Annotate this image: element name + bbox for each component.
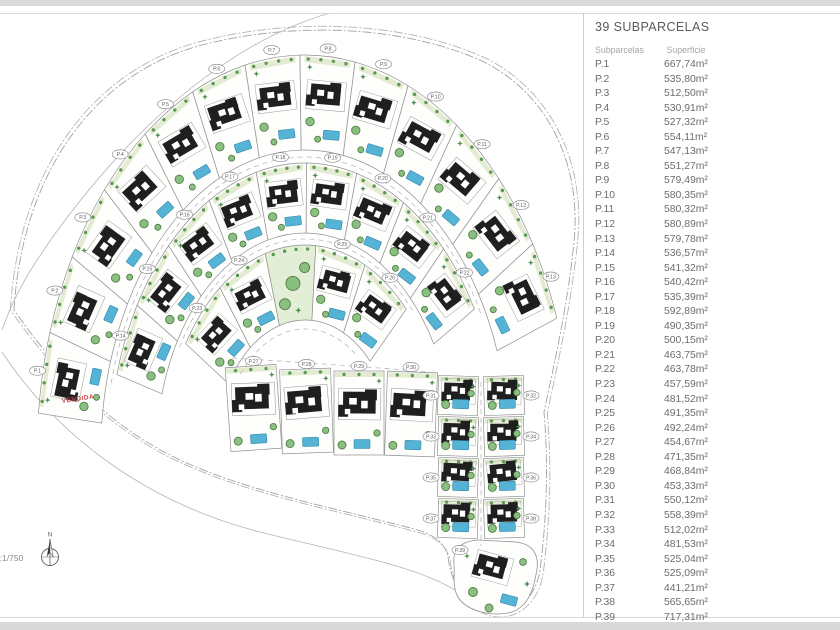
parcel xyxy=(385,371,438,457)
parcel-label: P.35 xyxy=(595,553,664,568)
parcel-label: P.25 xyxy=(595,407,664,422)
svg-text:P.7: P.7 xyxy=(268,48,275,54)
parcel-label: P.20 xyxy=(595,334,664,349)
parcel-area: 579,49m² xyxy=(664,175,708,186)
parcel-area: 535,80m² xyxy=(664,74,708,85)
parcel xyxy=(483,375,524,415)
table-row: P.18592,89m² xyxy=(595,305,839,320)
table-row: P.9579,49m² xyxy=(595,174,839,189)
table-row: P.28471,35m² xyxy=(595,451,839,466)
table-row: P.20500,15m² xyxy=(595,334,839,349)
parcel-label: P.6 xyxy=(595,131,664,146)
svg-text:P.3: P.3 xyxy=(79,215,86,221)
parcel-label: P.22 xyxy=(595,363,664,378)
parcel-label: P.11 xyxy=(595,203,664,218)
table-row: P.31550,12m² xyxy=(595,494,839,509)
parcel-label: P.37 xyxy=(595,582,664,597)
table-row: P.22463,78m² xyxy=(595,363,839,378)
parcel-table: P.1667,74m²P.2535,80m²P.3512,50m²P.4530,… xyxy=(595,58,839,625)
parcel-area: 463,78m² xyxy=(664,364,708,375)
parcel-label: P.31 xyxy=(595,494,664,509)
parcel-label: P.9 xyxy=(595,174,664,189)
parcel-label: P.4 xyxy=(595,102,664,117)
parcel-area: 580,89m² xyxy=(664,219,708,230)
svg-text:P.17: P.17 xyxy=(225,174,235,180)
svg-text:P.8: P.8 xyxy=(325,46,332,52)
parcel-label: P.33 xyxy=(595,524,664,539)
parcel-label: P.16 xyxy=(595,276,664,291)
svg-text:P.13: P.13 xyxy=(546,274,556,280)
svg-text:P.21: P.21 xyxy=(423,215,433,221)
svg-text:P.37: P.37 xyxy=(426,516,436,522)
parcel-area: 492,24m² xyxy=(664,423,708,434)
table-header: Subparcelas Superficie xyxy=(595,45,839,55)
parcel-area: 535,39m² xyxy=(664,292,708,303)
svg-text:P.12: P.12 xyxy=(516,203,526,209)
parcel-area: 554,11m² xyxy=(664,132,707,143)
table-row: P.11580,32m² xyxy=(595,203,839,218)
table-row: P.1667,74m² xyxy=(595,58,839,73)
table-row: P.30453,33m² xyxy=(595,480,839,495)
parcel-label: P.14 xyxy=(595,247,664,262)
parcel-area: 558,39m² xyxy=(664,510,708,521)
parcel xyxy=(483,416,524,456)
svg-text:P.4: P.4 xyxy=(117,152,124,158)
parcel-label: P.27 xyxy=(595,436,664,451)
parcel-area: 468,84m² xyxy=(664,466,708,477)
svg-text:P.16: P.16 xyxy=(180,213,190,219)
parcel-label: P.2 xyxy=(595,73,664,88)
parcel-area: 550,12m² xyxy=(664,495,708,506)
table-row: P.5527,32m² xyxy=(595,116,839,131)
parcel-area: 525,04m² xyxy=(664,554,708,565)
parcel xyxy=(225,364,282,451)
table-row: P.34481,53m² xyxy=(595,538,839,553)
parcel-area: 530,91m² xyxy=(664,103,708,114)
svg-text:P.33: P.33 xyxy=(426,434,436,440)
svg-text:P.28: P.28 xyxy=(301,362,311,368)
svg-text:P.19: P.19 xyxy=(328,156,338,162)
parcel-area: 481,53m² xyxy=(664,539,708,550)
svg-text:P.31: P.31 xyxy=(426,393,436,399)
parcel xyxy=(280,368,334,454)
table-row: P.32558,39m² xyxy=(595,509,839,524)
table-row: P.19490,35m² xyxy=(595,320,839,335)
parcel-area: 512,02m² xyxy=(664,525,708,536)
parcel-label: P.39 xyxy=(595,611,664,626)
svg-text:P.29: P.29 xyxy=(354,364,364,370)
table-row: P.10580,35m² xyxy=(595,189,839,204)
parcel-area: 481,52m² xyxy=(664,394,708,405)
table-row: P.2535,80m² xyxy=(595,73,839,88)
svg-text:P.11: P.11 xyxy=(477,142,487,148)
parcel xyxy=(483,457,524,497)
table-row: P.26492,24m² xyxy=(595,422,839,437)
parcel-label: P.18 xyxy=(595,305,664,320)
panel-title: 39 SUBPARCELAS xyxy=(595,20,839,34)
parcel xyxy=(437,498,478,538)
svg-text:P.1: P.1 xyxy=(34,369,41,375)
parcel-label: P.26 xyxy=(595,422,664,437)
parcel-label: P.29 xyxy=(595,465,664,480)
parcel-label: P.23 xyxy=(595,378,664,393)
svg-text:P.32: P.32 xyxy=(526,393,536,399)
parcel-area: 491,35m² xyxy=(664,408,708,419)
table-row: P.37441,21m² xyxy=(595,582,839,597)
site-plan-drawing: P.1P.2P.3P.4P.5P.6P.7P.8P.9P.10P.11P.12P… xyxy=(0,0,583,630)
svg-text:P.23: P.23 xyxy=(192,306,202,312)
parcel-label: P.32 xyxy=(595,509,664,524)
parcel xyxy=(483,498,524,538)
svg-text:P.5: P.5 xyxy=(162,102,169,108)
parcel-area: 463,75m² xyxy=(664,350,708,361)
parcel-label: P.7 xyxy=(595,145,664,160)
parcel xyxy=(437,457,478,497)
parcel-label: P.1 xyxy=(595,58,664,73)
parcel-area: 512,50m² xyxy=(664,88,708,99)
table-row: P.17535,39m² xyxy=(595,291,839,306)
parcel-area: 490,35m² xyxy=(664,321,708,332)
table-row: P.12580,89m² xyxy=(595,218,839,233)
col-header-superficie: Superficie xyxy=(666,45,705,55)
svg-text:P.18: P.18 xyxy=(275,155,285,161)
svg-text:P.25: P.25 xyxy=(337,242,347,248)
table-row: P.21463,75m² xyxy=(595,349,839,364)
svg-text:P.2: P.2 xyxy=(51,288,58,294)
parcel-label: P.21 xyxy=(595,349,664,364)
parcel-label: P.8 xyxy=(595,160,664,175)
parcel-area: 580,35m² xyxy=(664,190,708,201)
parcel-area: 453,33m² xyxy=(664,481,708,492)
table-row: P.4530,91m² xyxy=(595,102,839,117)
svg-text:P.34: P.34 xyxy=(526,434,536,440)
parcel-area: 541,32m² xyxy=(664,263,708,274)
parcel-label: P.24 xyxy=(595,393,664,408)
table-row: P.6554,11m² xyxy=(595,131,839,146)
parcel-label: P.10 xyxy=(595,189,664,204)
svg-text:P.22: P.22 xyxy=(460,270,470,276)
parcel-label: P.28 xyxy=(595,451,664,466)
parcel-label: P.38 xyxy=(595,596,664,611)
parcel-label: P.12 xyxy=(595,218,664,233)
parcel-area: 536,57m² xyxy=(664,248,708,259)
table-row: P.13579,78m² xyxy=(595,233,839,248)
svg-text:P.38: P.38 xyxy=(526,516,536,522)
table-row: P.29468,84m² xyxy=(595,465,839,480)
table-row: P.7547,13m² xyxy=(595,145,839,160)
parcel-area: 527,32m² xyxy=(664,117,708,128)
parcel-area: 717,31m² xyxy=(664,612,708,623)
parcel-area: 547,13m² xyxy=(664,146,708,157)
svg-text:P.24: P.24 xyxy=(234,258,244,264)
parcel-area: 540,42m² xyxy=(664,277,708,288)
svg-text:P.39: P.39 xyxy=(455,548,465,554)
col-header-subparcelas: Subparcelas xyxy=(595,45,664,55)
parcel-area: 579,78m² xyxy=(664,234,708,245)
table-row: P.25491,35m² xyxy=(595,407,839,422)
parcel-label: P.13 xyxy=(595,233,664,248)
parcel-area: 667,74m² xyxy=(664,59,708,70)
parcel-label: P.34 xyxy=(595,538,664,553)
table-row: P.35525,04m² xyxy=(595,553,839,568)
table-row: P.16540,42m² xyxy=(595,276,839,291)
parcel-label: P.15 xyxy=(595,262,664,277)
north-compass-icon: N xyxy=(42,532,59,566)
parcel-area: 580,32m² xyxy=(664,204,708,215)
table-row: P.38565,65m² xyxy=(595,596,839,611)
svg-text:P.30: P.30 xyxy=(406,365,416,371)
parcel xyxy=(334,371,384,455)
parcel-area: 457,59m² xyxy=(664,379,708,390)
parcel xyxy=(437,416,478,456)
svg-text:P.26: P.26 xyxy=(385,276,395,282)
svg-text:P.6: P.6 xyxy=(213,67,220,73)
parcel-label: P.17 xyxy=(595,291,664,306)
parcel-label: P.5 xyxy=(595,116,664,131)
svg-text:P.14: P.14 xyxy=(116,333,126,339)
parcel-area: 551,27m² xyxy=(664,161,708,172)
svg-text:P.15: P.15 xyxy=(142,267,152,273)
svg-text:P.35: P.35 xyxy=(426,475,436,481)
table-row: P.33512,02m² xyxy=(595,524,839,539)
table-row: P.23457,59m² xyxy=(595,378,839,393)
table-row: P.3512,50m² xyxy=(595,87,839,102)
svg-text:N: N xyxy=(48,532,53,539)
table-row: P.36525,09m² xyxy=(595,567,839,582)
parcel-label: P.19 xyxy=(595,320,664,335)
svg-text:P.27: P.27 xyxy=(248,359,258,365)
svg-text:P.20: P.20 xyxy=(378,176,388,182)
scale-text: e:1/750 xyxy=(0,553,24,563)
parcel-list-panel: 39 SUBPARCELAS Subparcelas Superficie P.… xyxy=(583,14,839,617)
page-top-strip xyxy=(0,0,840,6)
table-row: P.24481,52m² xyxy=(595,393,839,408)
parcel-area: 525,09m² xyxy=(664,568,708,579)
parcel-area: 471,35m² xyxy=(664,452,708,463)
parcel xyxy=(437,375,478,415)
parcel-label: P.3 xyxy=(595,87,664,102)
site-plan-screenshot: P.1P.2P.3P.4P.5P.6P.7P.8P.9P.10P.11P.12P… xyxy=(0,0,840,630)
svg-text:P.36: P.36 xyxy=(526,475,536,481)
table-row: P.39717,31m² xyxy=(595,611,839,626)
table-row: P.14536,57m² xyxy=(595,247,839,262)
parcel-area: 592,89m² xyxy=(664,306,708,317)
svg-text:P.9: P.9 xyxy=(380,62,387,68)
table-row: P.15541,32m² xyxy=(595,262,839,277)
table-row: P.27454,67m² xyxy=(595,436,839,451)
parcel-area: 441,21m² xyxy=(664,583,708,594)
parcel-area: 454,67m² xyxy=(664,437,708,448)
parcel-label: P.30 xyxy=(595,480,664,495)
parcel-label: P.36 xyxy=(595,567,664,582)
parcel-area: 500,15m² xyxy=(664,335,708,346)
parcel-area: 565,65m² xyxy=(664,597,708,608)
table-row: P.8551,27m² xyxy=(595,160,839,175)
svg-text:P.10: P.10 xyxy=(431,94,441,100)
